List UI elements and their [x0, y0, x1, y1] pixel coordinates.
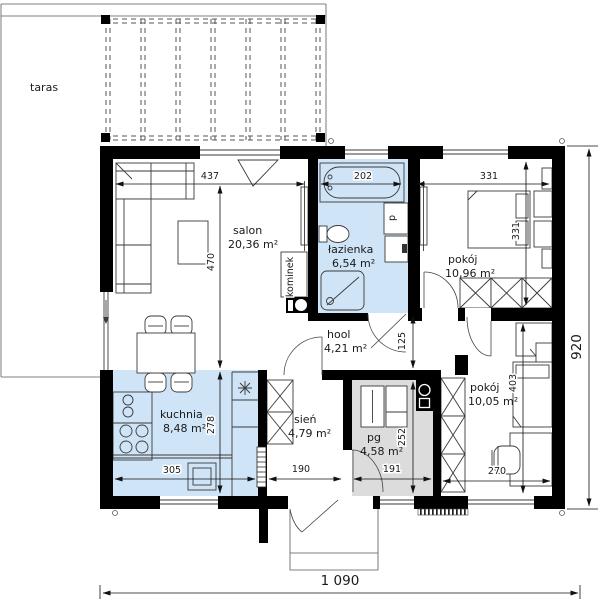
entrance-porch [259, 509, 468, 570]
pergola-post [101, 133, 110, 142]
hall-area: 4,21 m² [324, 342, 367, 355]
chair [171, 373, 192, 392]
dim-bathroom-width: 202 [354, 171, 372, 182]
nightstands [534, 168, 552, 268]
bedroom-top-area: 10,96 m² [445, 267, 495, 280]
kitchen-window [160, 496, 218, 509]
dining-table [137, 333, 195, 373]
dim-bedroom-top-height: 331 [511, 222, 522, 240]
kitchen-label: kuchnia [160, 408, 203, 421]
dim-kitchen-width: 305 [163, 465, 181, 476]
pergola-post [316, 15, 325, 24]
dim-utility-height: 252 [397, 428, 408, 446]
bedroom-bottom-label: pokój [470, 381, 499, 394]
bedroom-top-label: pokój [448, 253, 477, 266]
grate-strip [418, 509, 468, 515]
bathroom-window [345, 146, 388, 159]
dim-hall-height: 125 [397, 332, 408, 350]
bathroom-cabinet [385, 236, 408, 262]
kitchen-area: 8,48 m² [163, 422, 206, 435]
coffee-table [178, 221, 208, 264]
tv-salon [301, 181, 308, 251]
utility-area: 4,58 m² [360, 445, 403, 458]
left-window [100, 292, 113, 370]
dim-kitchen-height: 278 [206, 416, 217, 434]
pergola-post [316, 133, 325, 142]
bedroom-bottom-area: 10,05 m² [468, 395, 518, 408]
hall2-area: 4,79 m² [288, 427, 331, 440]
utility-boiler [416, 380, 433, 411]
dim-utility-width: 191 [383, 464, 401, 475]
dim-bedroom-top-width: 331 [480, 171, 498, 182]
hall-door [284, 337, 322, 375]
chair [171, 316, 192, 335]
wardrobe-bottom-bedroom [441, 378, 465, 492]
wardrobe-top-bedroom [460, 278, 552, 308]
hall2-label: sień [294, 413, 317, 426]
chair [145, 316, 166, 335]
bathroom-area: 6,54 m² [332, 257, 375, 270]
pergola-post [101, 15, 110, 24]
utility-cabinets [361, 386, 407, 427]
single-bed [513, 362, 552, 427]
dim-house-width: 1 090 [321, 573, 360, 589]
bathroom-label: łazienka [328, 243, 373, 256]
fridge-star-icon [238, 381, 252, 395]
washing-machine-label: p [387, 215, 398, 221]
dim-salon-height: 470 [206, 253, 217, 271]
hall-label: hool [327, 328, 351, 341]
salon-label: salon [233, 224, 262, 237]
bedroom-bottom-window [468, 496, 534, 509]
floor-plan-drawing: 437 202 331 470 278 331 125 252 403 305 … [0, 0, 604, 600]
dining-table-set [137, 316, 195, 392]
pergola-roof [101, 15, 325, 142]
bedroom-bottom-door [467, 317, 491, 356]
porch-pillar [259, 509, 268, 543]
dim-salon-width: 437 [201, 171, 219, 182]
salon-area: 20,36 m² [228, 238, 278, 251]
floor-plan: 437 202 331 470 278 331 125 252 403 305 … [0, 0, 604, 600]
fireplace-label: kominek [285, 256, 296, 297]
dim-hall2-width: 190 [292, 464, 310, 475]
utility-label: pg [367, 431, 381, 444]
radiator [257, 447, 266, 487]
dim-bedroom-bottom-height: 403 [508, 374, 519, 392]
tv-bedroom [420, 181, 427, 251]
dim-house-depth: 920 [569, 334, 585, 360]
bedroom-top-window [443, 146, 508, 159]
chair [145, 373, 166, 392]
dim-bedroom-bottom-width: 270 [488, 466, 506, 477]
toilet [319, 226, 349, 243]
utility-window [380, 496, 414, 509]
terrace-label: taras [30, 81, 58, 94]
